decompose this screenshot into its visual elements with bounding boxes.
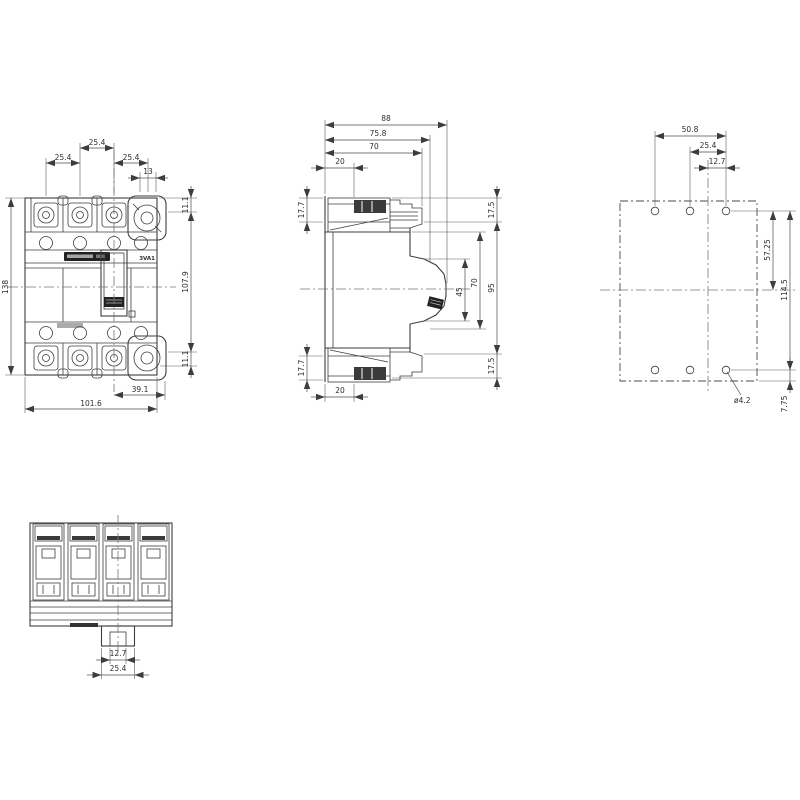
dim-bottom-rail-slot: 12.7 xyxy=(110,649,127,658)
terminal-screw-bottom xyxy=(354,367,386,380)
dim-side-handle-clearance: 70 xyxy=(470,278,479,288)
dim-side-offset-bottom: 17.5 xyxy=(487,357,496,374)
pole-cell xyxy=(33,524,64,600)
side-view: 88 75.8 70 20 17.7 17.7 xyxy=(297,114,502,402)
mounting-hole xyxy=(722,207,730,215)
dim-rear-hole-span-h: 50.8 xyxy=(682,125,699,134)
dim-rear-hole-span-v: 114.5 xyxy=(780,279,789,301)
dim-side-handle-height: 45 xyxy=(455,287,464,297)
dim-front-neutral: 13 xyxy=(143,167,153,176)
dim-side-offset-top: 17.5 xyxy=(487,201,496,218)
dim-front-offset-bottom: 11.1 xyxy=(181,350,190,367)
dim-front-pitch-center: 25.4 xyxy=(89,138,106,147)
type-label: 3VA1 xyxy=(139,256,155,262)
front-view-dimensions: 25.4 25.4 25.4 13 138 11.1 xyxy=(1,138,197,413)
dim-side-depth-overall: 88 xyxy=(381,114,391,123)
dim-front-pitch-right: 25.4 xyxy=(123,153,140,162)
dim-side-terminal-depth-bottom: 20 xyxy=(335,386,345,395)
bottom-view-dimensions: 12.7 25.4 xyxy=(87,648,149,679)
rear-view-dimensions: 50.8 25.4 12.7 57.25 114.5 7.75 ø4.2 xyxy=(655,125,796,412)
dim-bottom-rail-clip: 25.4 xyxy=(110,664,127,673)
dim-front-height: 138 xyxy=(1,280,10,295)
dim-rear-hole-pitch: 25.4 xyxy=(700,141,717,150)
pole-cell xyxy=(138,524,169,600)
dim-side-mounting-height: 95 xyxy=(487,283,496,293)
side-toggle-profile xyxy=(410,256,446,324)
dim-side-terminal-height-bottom: 17.7 xyxy=(297,359,306,376)
rail-clip-shadow xyxy=(70,623,98,627)
side-toggle-grip xyxy=(427,296,444,309)
rear-view-outline xyxy=(600,160,795,392)
dim-front-pitch-left: 25.4 xyxy=(55,153,72,162)
pole-cell xyxy=(68,524,99,600)
dim-front-width: 101.6 xyxy=(80,399,102,408)
dim-side-terminal-depth-top: 20 xyxy=(335,157,345,166)
rear-view: 50.8 25.4 12.7 57.25 114.5 7.75 ø4.2 xyxy=(600,125,796,412)
dimension-drawing: 3VA1 xyxy=(0,0,800,800)
front-view: 3VA1 xyxy=(1,138,197,413)
dim-rear-edge-offset: 7.75 xyxy=(780,395,789,412)
dim-front-offset-top: 11.1 xyxy=(181,196,190,213)
front-view-outline: 3VA1 xyxy=(8,150,176,392)
pole-cell xyxy=(103,524,134,600)
mounting-hole xyxy=(651,366,659,374)
mounting-hole xyxy=(722,366,730,374)
mounting-hole xyxy=(686,366,694,374)
drawing-canvas: 3VA1 xyxy=(0,0,800,800)
terminal-screw-top xyxy=(354,200,386,213)
mounting-hole xyxy=(686,207,694,215)
bottom-view: 12.7 25.4 xyxy=(30,515,172,679)
dim-rear-hole-to-center: 12.7 xyxy=(709,157,726,166)
dim-side-depth-front: 75.8 xyxy=(370,129,387,138)
marking-text-block xyxy=(57,323,83,328)
dim-side-terminal-height-top: 17.7 xyxy=(297,201,306,218)
dim-front-center-right: 39.1 xyxy=(132,385,149,394)
dim-rear-hole-to-centerline: 57.25 xyxy=(763,239,772,261)
bottom-view-outline xyxy=(30,515,172,655)
dim-side-depth-body: 70 xyxy=(369,142,379,151)
dim-front-terminal-span: 107.9 xyxy=(181,271,190,293)
mounting-hole xyxy=(651,207,659,215)
hole-diameter-callout: ø4.2 xyxy=(734,396,751,405)
